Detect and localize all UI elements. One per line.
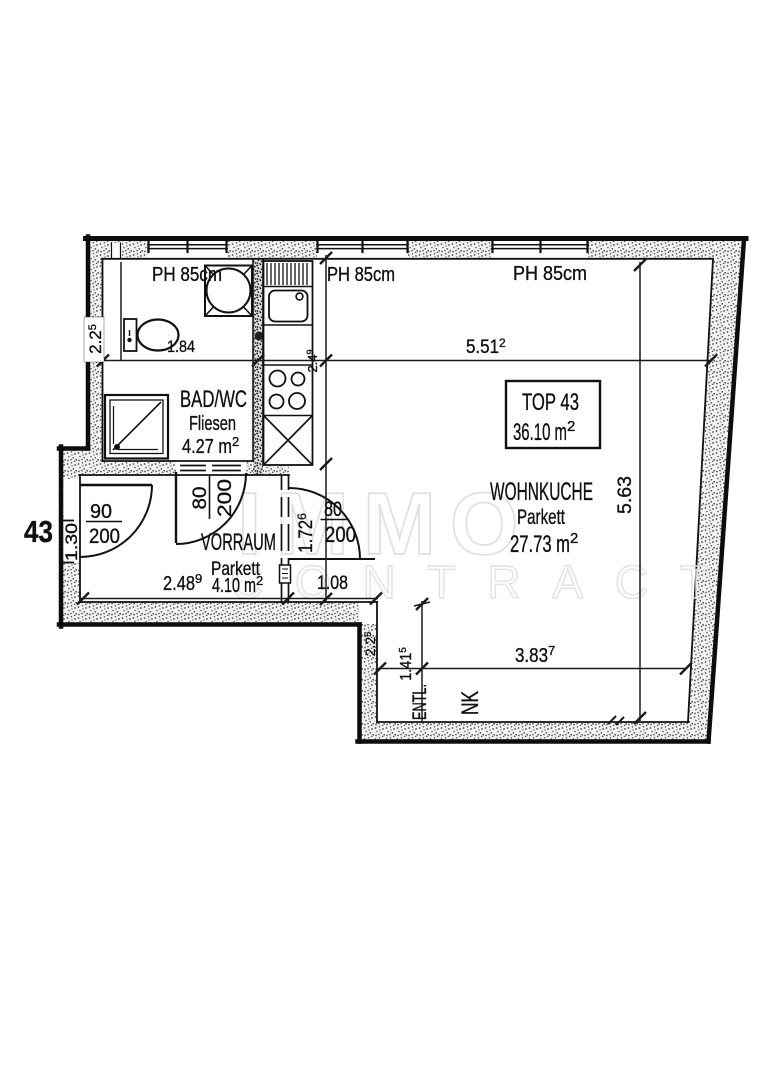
svg-text:200: 200 [215, 479, 236, 517]
svg-text:Fliesen: Fliesen [189, 413, 236, 435]
svg-text:PH 85cm: PH 85cm [327, 264, 395, 286]
svg-text:80: 80 [324, 498, 342, 521]
svg-text:1.84: 1.84 [167, 337, 195, 356]
svg-text:27.73 m2: 27.73 m2 [510, 530, 578, 558]
svg-text:TOP 43: TOP 43 [522, 389, 579, 416]
svg-text:WOHNKUCHE: WOHNKUCHE [490, 478, 593, 506]
svg-text:1.30: 1.30 [62, 523, 81, 561]
svg-text:1.08: 1.08 [317, 573, 348, 594]
svg-text:200: 200 [89, 525, 120, 548]
svg-text:PH 85cm: PH 85cm [513, 263, 587, 285]
svg-text:ENTL.: ENTL. [410, 684, 431, 720]
svg-text:200: 200 [325, 522, 356, 547]
svg-text:36.10 m2: 36.10 m2 [513, 418, 575, 446]
svg-text:4.10 m2: 4.10 m2 [212, 573, 263, 597]
svg-text:4.27 m2: 4.27 m2 [182, 434, 239, 458]
svg-text:PH 85cm: PH 85cm [152, 264, 222, 286]
svg-text:Parkett: Parkett [517, 506, 565, 529]
svg-text:BAD/WC: BAD/WC [180, 386, 247, 413]
svg-text:NK: NK [457, 691, 484, 715]
svg-text:5.63: 5.63 [615, 476, 636, 514]
svg-text:VORRAUM: VORRAUM [201, 529, 276, 556]
svg-text:43: 43 [24, 514, 53, 549]
svg-text:80: 80 [190, 487, 211, 510]
svg-text:90: 90 [90, 501, 112, 523]
